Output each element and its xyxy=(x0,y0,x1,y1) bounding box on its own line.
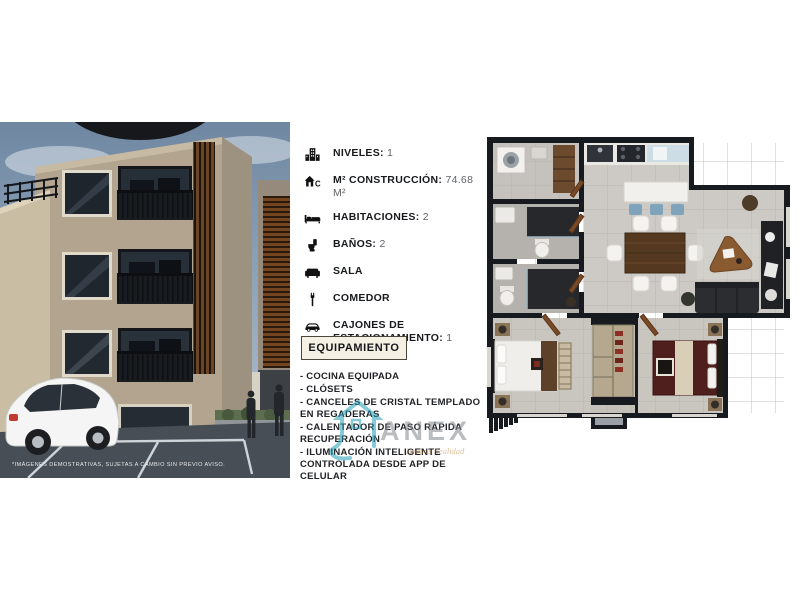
sofa-icon xyxy=(299,263,325,281)
feature-row-comedor: COMEDOR xyxy=(299,290,487,308)
equipamiento-list: - COCINA EQUIPADA - CLÓSETS - CANCELES D… xyxy=(300,371,482,484)
svg-text:C: C xyxy=(314,179,320,188)
feature-row-sala: SALA xyxy=(299,263,487,281)
wood-slat-accent xyxy=(193,142,215,374)
kitchen xyxy=(584,143,689,165)
building-render-illustration: *IMÁGENES DEMOSTRATIVAS, SUJETAS A CAMBI… xyxy=(0,122,290,478)
equipamiento-box: EQUIPAMIENTO xyxy=(301,336,407,360)
equipamiento-item: - CANCELES DE CRISTAL TEMPLADO EN REGADE… xyxy=(300,397,482,421)
equipamiento-item: - CLÓSETS xyxy=(300,384,482,396)
equipamiento-item: - CALENTADOR DE PASO RÁPIDA RECUPERACIÓN xyxy=(300,422,482,446)
feature-row-construccion: C M² CONSTRUCCIÓN: 74.68 M² xyxy=(299,172,487,200)
floor-plan-drawing xyxy=(487,137,790,433)
equipamiento-title: EQUIPAMIENTO xyxy=(308,342,399,354)
photo-disclaimer: *IMÁGENES DEMOSTRATIVAS, SUJETAS A CAMBI… xyxy=(12,461,225,468)
building-render-photo: *IMÁGENES DEMOSTRATIVAS, SUJETAS A CAMBI… xyxy=(0,122,290,478)
feature-row-banos: BAÑOS: 2 xyxy=(299,236,487,254)
bed-icon xyxy=(299,209,325,227)
construction-house-icon: C xyxy=(299,172,325,190)
bathroom-bottom xyxy=(495,267,579,309)
property-flyer: *IMÁGENES DEMOSTRATIVAS, SUJETAS A CAMBI… xyxy=(0,0,800,600)
floor-plan xyxy=(487,137,790,433)
equipamiento-item: - ILUMINACIÓN INTELIGENTE CONTROLADA DES… xyxy=(300,447,482,483)
breakfast-bar xyxy=(624,182,688,215)
equipamiento-item: - COCINA EQUIPADA xyxy=(300,371,482,383)
bath-icon xyxy=(299,236,325,254)
entry-threshold xyxy=(591,418,627,429)
wardrobe xyxy=(591,313,635,405)
features-list: NIVELES: 1 C M² CONSTRUCCIÓN: 74.68 M² H… xyxy=(299,145,487,354)
stairs xyxy=(489,418,518,433)
feature-row-habitaciones: HABITACIONES: 2 xyxy=(299,209,487,227)
car-icon xyxy=(299,317,325,335)
levels-building-icon xyxy=(299,145,325,163)
dining-icon xyxy=(299,290,325,308)
feature-row-niveles: NIVELES: 1 xyxy=(299,145,487,163)
